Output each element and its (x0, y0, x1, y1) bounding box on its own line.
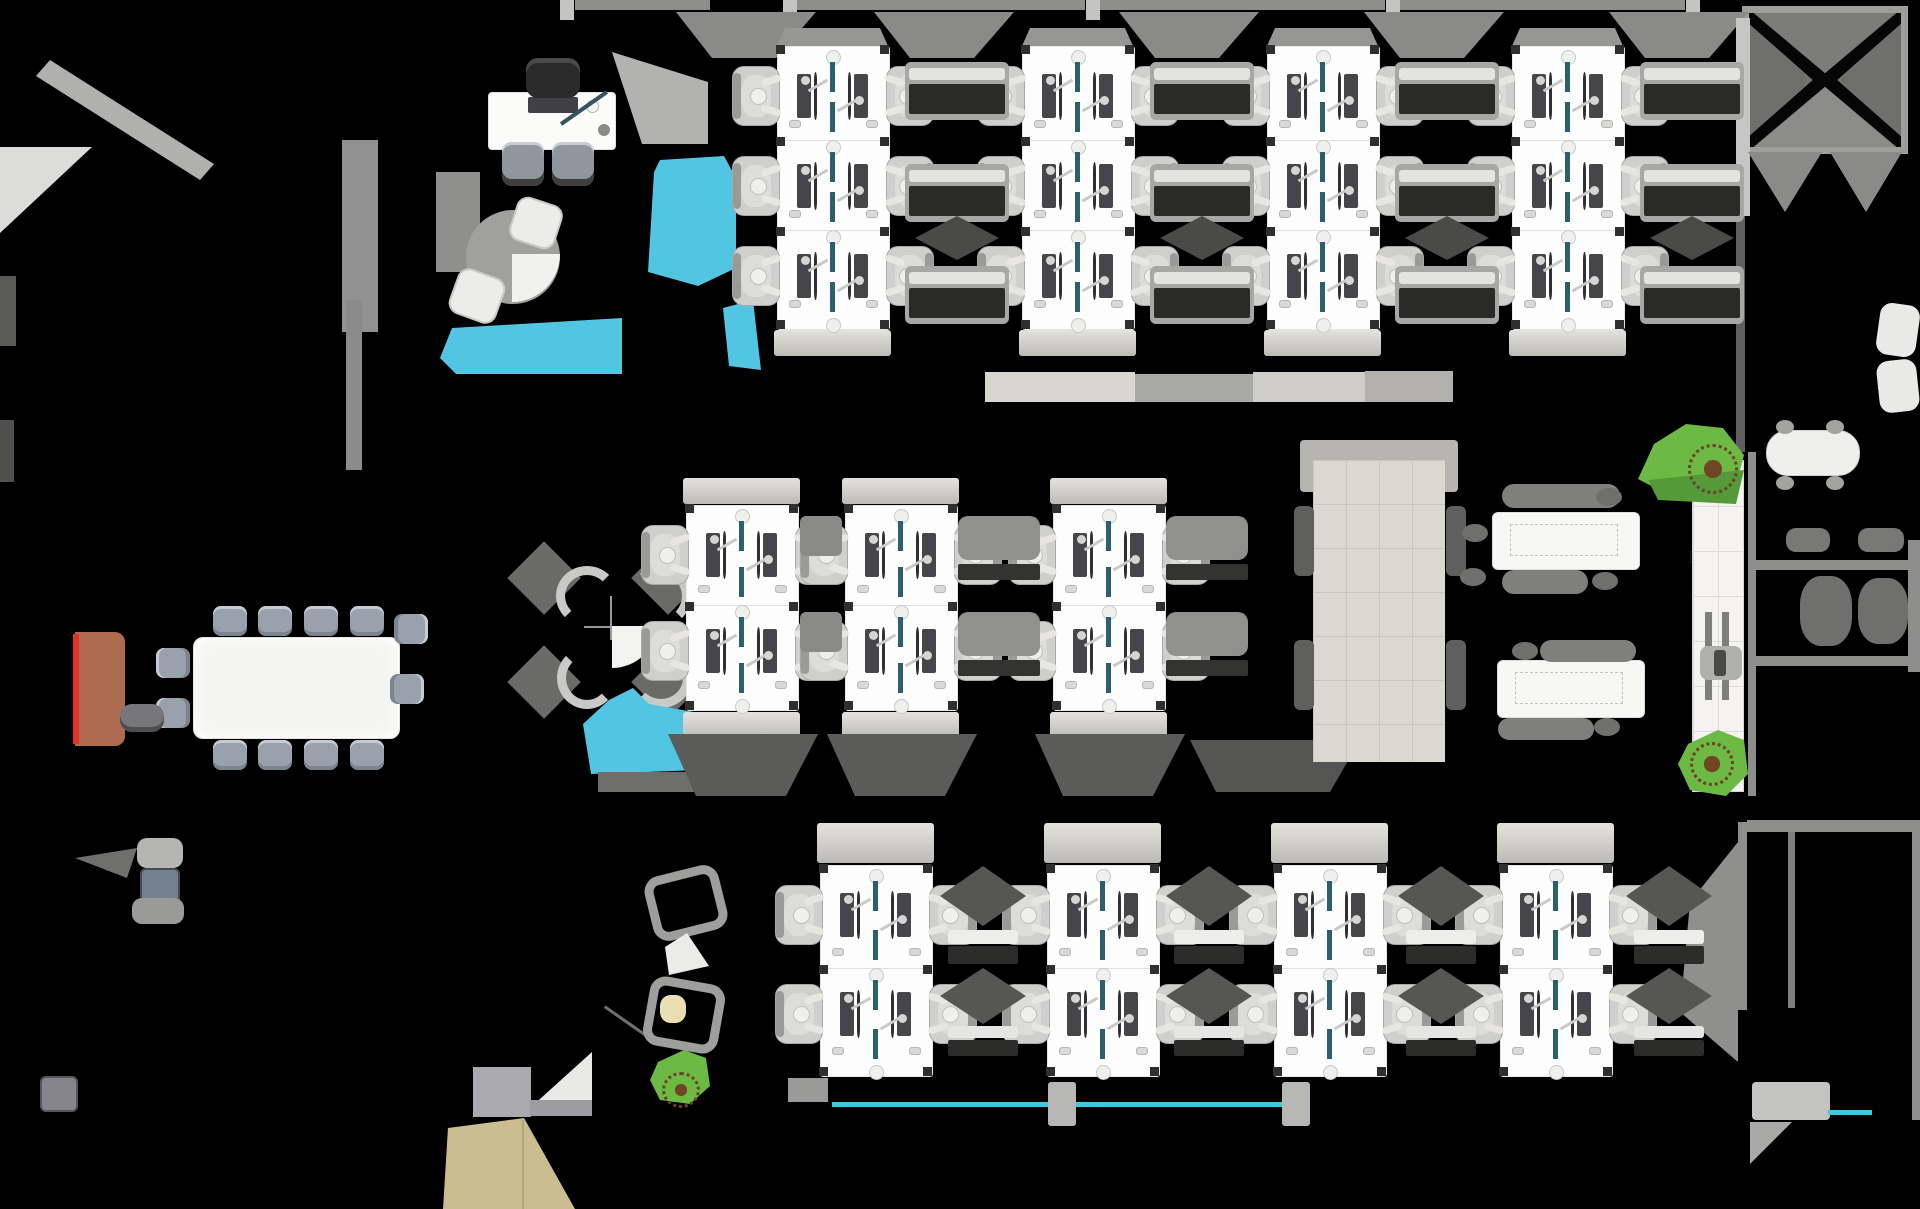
desk-outlet (1034, 120, 1046, 128)
conference-chair (390, 674, 424, 704)
lamp-head (1524, 895, 1533, 904)
bench-foot (844, 602, 853, 611)
cable-tray (1327, 980, 1332, 1010)
stair-exit-wedge (1748, 152, 1822, 212)
booth-wing (1294, 640, 1314, 710)
wall-partition (346, 300, 362, 470)
wall-right (1748, 452, 1756, 796)
cabinet-front (948, 946, 1018, 964)
wall-band (1253, 372, 1365, 402)
monitor-screen (723, 531, 726, 579)
lamp-head (869, 535, 878, 544)
office-chair (641, 621, 689, 681)
person-head (1473, 1006, 1490, 1023)
pouf (1594, 718, 1620, 736)
desk-outlet (698, 681, 710, 689)
cabinet-front (909, 186, 1005, 216)
cable-tray (830, 152, 835, 182)
bench-foot (880, 137, 889, 146)
cabinet-front (1154, 288, 1250, 318)
bench-foot (1370, 227, 1379, 236)
plant-starburst (1688, 444, 1738, 494)
wall-right-edge (1912, 820, 1920, 1120)
cabinet-top (909, 68, 1005, 80)
cabinet-top (1634, 930, 1704, 944)
cable-tray (1100, 1029, 1105, 1059)
desk-outlet (857, 585, 869, 593)
chair-back (776, 892, 784, 938)
bench-endcap (1267, 28, 1378, 46)
lamp-head (1077, 631, 1086, 640)
cable-tray (1565, 282, 1570, 312)
booth-wing (1446, 640, 1466, 710)
storage-credenza (817, 823, 934, 863)
guest-chair (502, 142, 544, 186)
cable-tray (898, 663, 903, 693)
cabinet-top (1399, 68, 1495, 80)
bench-foot (923, 965, 932, 974)
cable-tray (1553, 930, 1558, 960)
desk-outlet (934, 585, 946, 593)
pouf (1460, 568, 1486, 586)
sofa-cyan (440, 318, 622, 374)
door-line (1828, 1110, 1872, 1115)
cabinet-front (1399, 84, 1495, 114)
office-chair (775, 885, 823, 945)
monitor-screen (1093, 72, 1096, 120)
cabinet-front (1406, 1040, 1476, 1056)
lamp-head (898, 1014, 907, 1023)
desk-outlet (1356, 120, 1368, 128)
desk-outlet (1601, 210, 1613, 218)
storage-credenza (958, 516, 1040, 560)
lamp-head (764, 555, 773, 564)
lamp-head (855, 186, 864, 195)
monitor-screen (1345, 990, 1348, 1038)
wall-band (985, 372, 1135, 402)
bench-endcap (1512, 28, 1623, 46)
desk-outlet (1363, 1047, 1375, 1055)
bench-foot (789, 602, 798, 611)
executive-chair (526, 58, 580, 98)
bench-foot (880, 320, 889, 329)
lamp-head (855, 276, 864, 285)
cable-grommet (826, 318, 841, 333)
cable-tray (1565, 62, 1570, 92)
pantry-fixture (1800, 576, 1852, 646)
lamp-head (1536, 166, 1545, 175)
bench-foot (1156, 602, 1165, 611)
bench-foot (1150, 965, 1159, 974)
wall-stub (0, 276, 16, 346)
monitor-screen (1571, 891, 1574, 939)
storage-credenza (1019, 330, 1136, 356)
monitor-screen (1583, 252, 1586, 300)
wall-tab (1282, 1082, 1310, 1126)
pouf (1462, 524, 1488, 542)
cable-tray (1565, 102, 1570, 132)
bench-foot (1125, 45, 1134, 54)
bench-foot (923, 1067, 932, 1076)
cabinet-top (1174, 930, 1244, 944)
cable-tray (1100, 930, 1105, 960)
cable-tray (1565, 242, 1570, 272)
lamp-head (1578, 1014, 1587, 1023)
bench-foot (776, 227, 785, 236)
cable-tray (1320, 192, 1325, 222)
monitor-screen (1090, 627, 1093, 675)
office-chair (732, 156, 780, 216)
cable-tray (1075, 102, 1080, 132)
cable-tray (1075, 62, 1080, 92)
sofa-cyan (648, 156, 736, 286)
person-head (942, 1006, 959, 1023)
monitor-screen (891, 891, 894, 939)
cable-tray (1100, 881, 1105, 911)
lamp-head (1590, 276, 1599, 285)
bench-foot (1021, 45, 1030, 54)
desk-outlet (1136, 1047, 1148, 1055)
cable-grommet (1316, 318, 1331, 333)
cable-tray (898, 521, 903, 551)
cabinet-top (1154, 68, 1250, 80)
wall-band (1365, 371, 1453, 402)
wall-ledge (1747, 820, 1913, 832)
bench-foot (1266, 227, 1275, 236)
bench-foot (685, 504, 694, 513)
lamp-head (1291, 76, 1300, 85)
monitor-screen (1059, 252, 1062, 300)
lamp-head (1352, 915, 1361, 924)
desk-outlet (789, 120, 801, 128)
lamp-head (1131, 651, 1140, 660)
bench-foot (1021, 137, 1030, 146)
cable-grommet (1071, 318, 1086, 333)
lamp-head (923, 555, 932, 564)
bench-foot (948, 504, 957, 513)
cable-tray (1075, 192, 1080, 222)
cable-tray (1320, 62, 1325, 92)
pod-chair (137, 838, 183, 868)
cabinet-front (1174, 946, 1244, 964)
cable-tray (1553, 881, 1558, 911)
cable-tray (873, 1029, 878, 1059)
storage-credenza (1166, 516, 1248, 560)
cable-tray (1106, 567, 1111, 597)
wall-vertical (1738, 822, 1747, 1010)
lamp-head (710, 535, 719, 544)
storage-credenza (1509, 330, 1626, 356)
bench-foot (1603, 864, 1612, 873)
cable-tray (739, 567, 744, 597)
conference-chair (304, 606, 338, 636)
bench-foot (685, 701, 694, 710)
cable-tray (1565, 152, 1570, 182)
bench-foot (1377, 965, 1386, 974)
lamp-head (801, 166, 810, 175)
cabinet-front (909, 288, 1005, 318)
monitor-screen (1338, 162, 1341, 210)
cabinet-front (1399, 288, 1495, 318)
floor-patch (612, 52, 708, 144)
bench-foot (1615, 45, 1624, 54)
cabinet-front (1166, 660, 1248, 676)
person-head (1169, 907, 1186, 924)
cable-grommet (1549, 1065, 1564, 1080)
plant-starburst (662, 1072, 700, 1108)
monitor-screen (848, 162, 851, 210)
sofa-cyan (723, 300, 761, 370)
lamp-head (1100, 96, 1109, 105)
floor-patch (788, 1078, 828, 1102)
monitor-screen (1311, 990, 1314, 1038)
storage-credenza (1044, 823, 1161, 863)
lamp-head (1100, 276, 1109, 285)
cabinet-front (948, 1040, 1018, 1056)
desk-outlet (789, 210, 801, 218)
desk-outlet (1111, 210, 1123, 218)
bench-foot (776, 45, 785, 54)
cabinet-block (1752, 1082, 1830, 1120)
arc-chair (557, 647, 617, 709)
monitor-screen (1571, 990, 1574, 1038)
desk-outlet (775, 585, 787, 593)
oval-table (1766, 430, 1860, 476)
pod-chair (132, 898, 184, 924)
bench-foot (1273, 864, 1282, 873)
soft-seat (1875, 358, 1920, 414)
monitor-screen (1304, 162, 1307, 210)
cabinet-top (948, 930, 1018, 944)
bench-foot (819, 864, 828, 873)
bench-foot (1052, 602, 1061, 611)
desk-outlet (1034, 210, 1046, 218)
bench-foot (880, 227, 889, 236)
lounge-sofa (1498, 718, 1594, 740)
stool (120, 704, 164, 732)
wall-horizontal (1756, 656, 1920, 666)
monitor-screen (1549, 252, 1552, 300)
bench-foot (1021, 320, 1030, 329)
cable-tray (873, 980, 878, 1010)
bench-foot (1499, 1067, 1508, 1076)
wall-horizontal (1756, 560, 1920, 570)
lamp-head (764, 651, 773, 660)
person-head (750, 268, 767, 285)
person-head (1473, 907, 1490, 924)
desk-outlet (1059, 948, 1071, 956)
person-head (1396, 1006, 1413, 1023)
bench-foot (1125, 320, 1134, 329)
person-head (1396, 907, 1413, 924)
booth-wing (1294, 506, 1314, 576)
person-head (1169, 1006, 1186, 1023)
conference-table (193, 637, 400, 739)
fridge-handle (1714, 650, 1726, 676)
cable-tray (1320, 242, 1325, 272)
wall-stub (0, 420, 14, 482)
dashed-partition (118, 808, 542, 811)
cabinet-top (1399, 170, 1495, 182)
bench-foot (1150, 864, 1159, 873)
lamp-head (1578, 915, 1587, 924)
cable-tray (873, 881, 878, 911)
monitor-screen (1537, 990, 1540, 1038)
bench-foot (1021, 227, 1030, 236)
cabinet-top (909, 272, 1005, 284)
chair-back (642, 532, 650, 578)
cabinet-front (1166, 564, 1248, 580)
staircase (1742, 6, 1908, 154)
person-head (1247, 1006, 1264, 1023)
bench-foot (776, 320, 785, 329)
cabinet-top (1174, 1026, 1244, 1038)
cabinet-top (1406, 930, 1476, 944)
monitor-screen (882, 627, 885, 675)
whiteboard-strip (73, 634, 79, 744)
desk-outlet (832, 1047, 844, 1055)
monitor-screen (1124, 531, 1127, 579)
chair-back (733, 253, 741, 299)
cable-grommet (1102, 699, 1117, 714)
pantry-seat (1786, 528, 1830, 552)
bench-foot (1156, 504, 1165, 513)
desk-outlet (1524, 210, 1536, 218)
monitor-screen (757, 627, 760, 675)
cabinet-top (1154, 272, 1250, 284)
bench-foot (1046, 864, 1055, 873)
cable-tray (1553, 980, 1558, 1010)
tent-seam (522, 1120, 524, 1209)
lamp-head (801, 256, 810, 265)
bench-foot (1125, 227, 1134, 236)
monitor-screen (1345, 891, 1348, 939)
person-head (750, 88, 767, 105)
lamp-head (801, 76, 810, 85)
desk-outlet (1136, 948, 1148, 956)
bench-foot (1377, 1067, 1386, 1076)
cabinet-top (1634, 1026, 1704, 1038)
desk-outlet (1142, 681, 1154, 689)
chair-back (642, 628, 650, 674)
lamp-head (1046, 256, 1055, 265)
monitor-screen (1093, 162, 1096, 210)
conference-chair (258, 606, 292, 636)
lamp-head (710, 631, 719, 640)
cabinet-front (1634, 1040, 1704, 1056)
desk-outlet (1279, 210, 1291, 218)
booth-panel (1313, 460, 1445, 762)
cable-tray (830, 242, 835, 272)
bench-foot (1511, 227, 1520, 236)
monitor-screen (1084, 990, 1087, 1038)
lamp-head (1345, 96, 1354, 105)
desk-outlet (1512, 1047, 1524, 1055)
bench-foot (1511, 137, 1520, 146)
bench-foot (789, 701, 798, 710)
monitor-screen (882, 531, 885, 579)
wall-top (1395, 0, 1685, 10)
floor-plan-canvas: Booth Unit 6 seater Booth Unit 6 seater … (0, 0, 1920, 1209)
tent-shape (433, 1118, 575, 1209)
lamp-head (1100, 186, 1109, 195)
cabinet-top (1644, 170, 1740, 182)
storage-credenza (800, 516, 842, 556)
monitor-screen (916, 627, 919, 675)
cable-tray (739, 617, 744, 647)
bench-foot (1266, 320, 1275, 329)
monitor-screen (1304, 252, 1307, 300)
desk-outlet (1111, 120, 1123, 128)
table-dashed-inlay (1510, 524, 1618, 556)
desk-outlet (1601, 300, 1613, 308)
bench-foot (1603, 1067, 1612, 1076)
bench-foot (685, 602, 694, 611)
cabinet-block (473, 1067, 531, 1117)
small-unit (40, 1076, 78, 1112)
cable-tray (898, 617, 903, 647)
person-head (1622, 1006, 1639, 1023)
cable-tray (830, 62, 835, 92)
desk-outlet (1111, 300, 1123, 308)
bench-foot (1052, 701, 1061, 710)
cable-grommet (735, 699, 750, 714)
desk-cup (598, 124, 610, 136)
cabinet-front (1644, 186, 1740, 216)
bench-foot (819, 1067, 828, 1076)
table-wedge (512, 254, 560, 302)
desk-tray (528, 97, 578, 113)
cabinet-front (958, 660, 1040, 676)
desk-outlet (1589, 1047, 1601, 1055)
lamp-head (1125, 915, 1134, 924)
storage-credenza (1271, 823, 1388, 863)
bench-foot (1511, 45, 1520, 54)
plant-starburst (1690, 742, 1734, 786)
monitor-screen (1338, 252, 1341, 300)
lamp-head (1291, 256, 1300, 265)
cabinet-front (1406, 946, 1476, 964)
bench-foot (1615, 137, 1624, 146)
wall-vertical (1788, 832, 1795, 1008)
desk-outlet (1601, 120, 1613, 128)
arc-chair (556, 566, 618, 626)
lamp-head (1345, 276, 1354, 285)
pouf (1596, 488, 1622, 506)
lamp-head (1131, 555, 1140, 564)
floor-patch (598, 772, 694, 792)
lamp-head (1077, 535, 1086, 544)
conference-chair (213, 740, 247, 770)
bench-foot (1511, 320, 1520, 329)
desk-outlet (1524, 120, 1536, 128)
lamp-head (898, 915, 907, 924)
monitor-screen (916, 531, 919, 579)
monitor-screen (814, 162, 817, 210)
soft-seat (1875, 301, 1920, 358)
cabinet-front (1644, 288, 1740, 318)
cabinet-top (1154, 170, 1250, 182)
bench-foot (1370, 137, 1379, 146)
bench-foot (1125, 137, 1134, 146)
cabinet-top (1644, 68, 1740, 80)
bench-foot (844, 504, 853, 513)
floor-wedge (1364, 12, 1504, 58)
bench-foot (1273, 1067, 1282, 1076)
monitor-screen (1059, 162, 1062, 210)
monitor-screen (1583, 72, 1586, 120)
bench-foot (1499, 965, 1508, 974)
